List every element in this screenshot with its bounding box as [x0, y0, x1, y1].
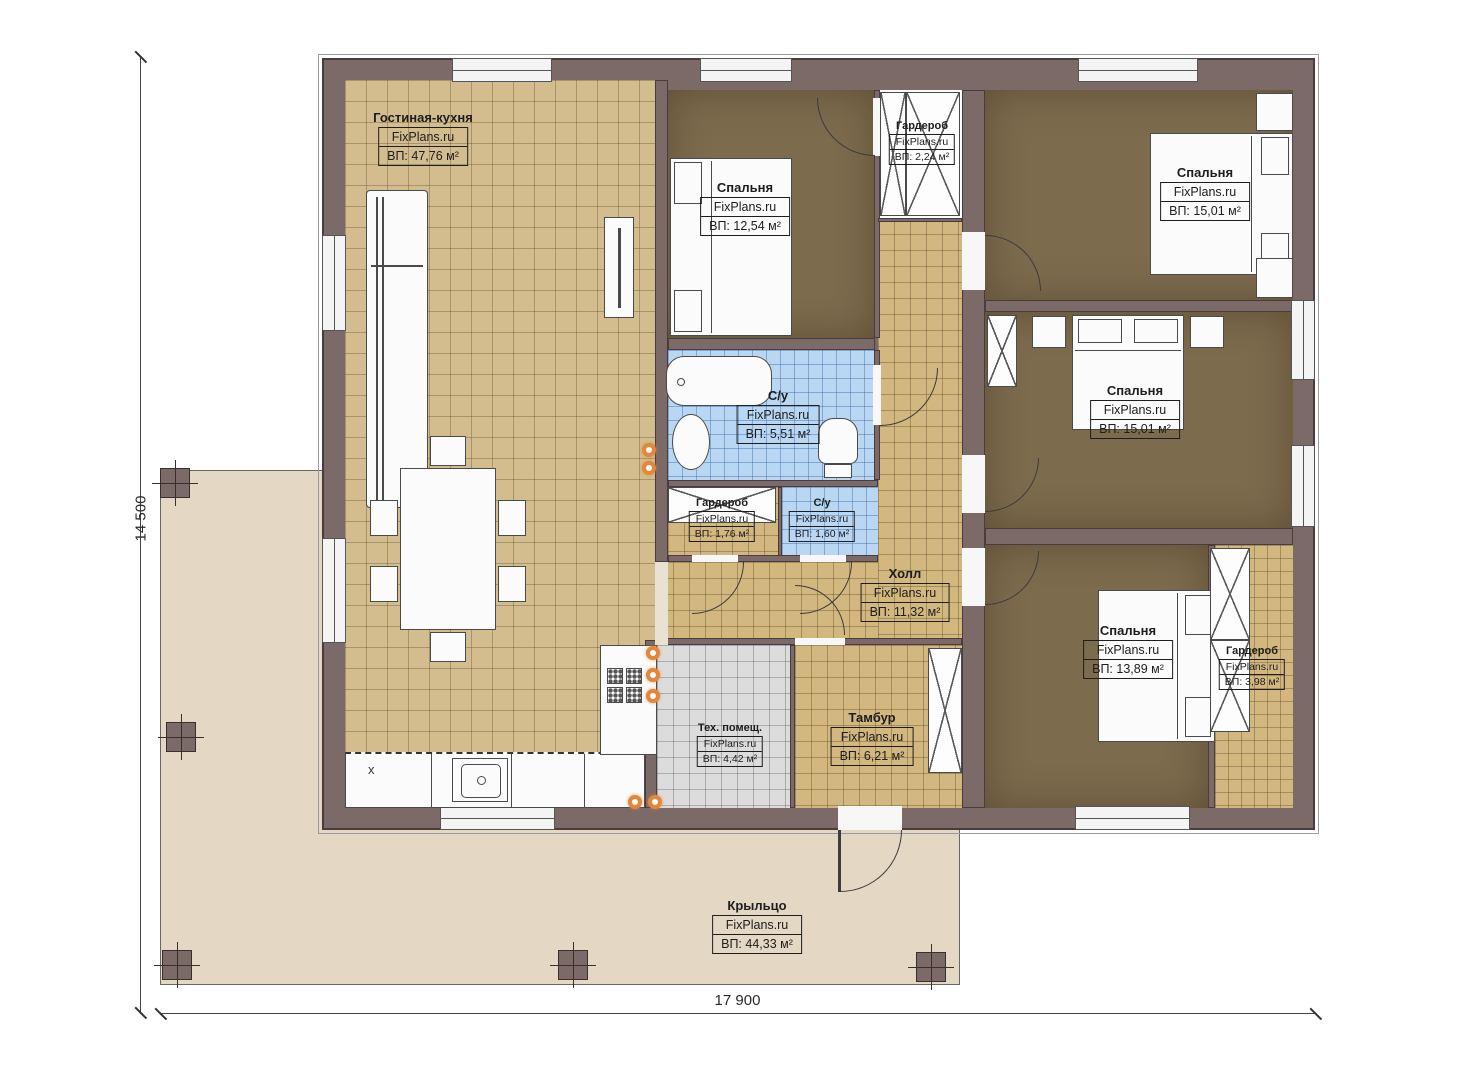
room-label-living: Гостиная-кухня FixPlans.ru ВП: 47,76 м² — [373, 110, 473, 166]
porch-post — [916, 952, 946, 982]
downlight-icon — [642, 443, 656, 457]
room-label-bath-main: С/у FixPlans.ru ВП: 5,51 м² — [737, 388, 820, 444]
room-name: Спальня — [700, 180, 790, 195]
door-opening — [962, 455, 985, 513]
room-area: ВП: 1,76 м² — [690, 526, 754, 541]
chair — [370, 500, 398, 536]
kitchen-sink — [452, 758, 508, 802]
downlight-icon — [628, 795, 642, 809]
nightstand — [1256, 258, 1293, 298]
brand-watermark: FixPlans.ru — [862, 584, 949, 602]
room-label-bedroom-right2: Спальня FixPlans.ru ВП: 15,01 м² — [1090, 383, 1180, 439]
wardrobe-cabinet — [1210, 548, 1250, 640]
brand-watermark: FixPlans.ru — [890, 135, 954, 149]
wall-segment — [778, 487, 782, 562]
room-area: ВП: 15,01 м² — [1091, 419, 1179, 438]
nightstand — [1032, 316, 1066, 348]
dimension-height-label: 14 500 — [133, 474, 150, 564]
wall-segment — [985, 300, 1293, 312]
entrance-door-opening — [838, 806, 902, 830]
bathroom-sink — [672, 414, 710, 470]
room-label-bedroom-bottom: Спальня FixPlans.ru ВП: 13,89 м² — [1083, 623, 1173, 679]
room-area: ВП: 13,89 м² — [1084, 659, 1172, 678]
door-opening — [800, 555, 846, 562]
downlight-icon — [646, 646, 660, 660]
window — [452, 58, 552, 82]
floor-plan: x Гос — [0, 0, 1473, 1080]
window — [322, 538, 346, 643]
brand-watermark: FixPlans.ru — [690, 512, 754, 526]
wall-segment — [668, 480, 878, 487]
room-label-bath-small: С/у FixPlans.ru ВП: 1,60 м² — [789, 497, 855, 542]
toilet — [816, 418, 860, 480]
room-name: Тех. помещ. — [697, 722, 763, 734]
porch-post — [160, 468, 190, 498]
chair — [498, 500, 526, 536]
sofa — [366, 190, 428, 508]
wall-segment — [878, 218, 962, 222]
downlight-icon — [646, 689, 660, 703]
room-name: Спальня — [1083, 623, 1173, 638]
room-area: ВП: 11,32 м² — [862, 602, 949, 621]
room-area: ВП: 15,01 м² — [1161, 201, 1249, 220]
tv-stand — [604, 217, 634, 318]
room-label-hall: Холл FixPlans.ru ВП: 11,32 м² — [861, 566, 950, 622]
nightstand — [1190, 316, 1224, 348]
wall-segment — [790, 645, 795, 808]
chair — [430, 436, 466, 466]
room-name: С/у — [789, 497, 855, 509]
porch-post — [166, 722, 196, 752]
room-name: Гардероб — [889, 120, 955, 132]
room-area: ВП: 5,51 м² — [738, 424, 819, 443]
room-label-bedroom-top: Спальня FixPlans.ru ВП: 12,54 м² — [700, 180, 790, 236]
closet-cabinet — [928, 648, 962, 773]
downlight-icon — [648, 795, 662, 809]
downlight-icon — [646, 668, 660, 682]
room-label-wardrobe-top: Гардероб FixPlans.ru ВП: 2,24 м² — [889, 120, 955, 165]
chair — [370, 566, 398, 602]
door-opening — [795, 638, 845, 645]
brand-watermark: FixPlans.ru — [1084, 641, 1172, 659]
downlight-icon — [642, 461, 656, 475]
room-label-tambur: Тамбур FixPlans.ru ВП: 6,21 м² — [831, 710, 914, 766]
room-name: Тамбур — [831, 710, 914, 725]
window — [322, 235, 346, 331]
room-area: ВП: 47,76 м² — [379, 146, 467, 165]
brand-watermark: FixPlans.ru — [701, 198, 789, 216]
brand-watermark: FixPlans.ru — [832, 728, 913, 746]
door-opening — [962, 548, 985, 606]
room-name: Гостиная-кухня — [373, 110, 473, 125]
room-name: С/у — [737, 388, 820, 403]
dining-table — [400, 468, 496, 630]
room-area: ВП: 6,21 м² — [832, 746, 913, 765]
room-area: ВП: 12,54 м² — [701, 216, 789, 235]
room-area: ВП: 2,24 м² — [890, 149, 954, 164]
window — [1291, 445, 1315, 527]
room-label-porch: Крыльцо FixPlans.ru ВП: 44,33 м² — [712, 898, 802, 954]
window — [1078, 58, 1198, 82]
brand-watermark: FixPlans.ru — [1091, 401, 1179, 419]
wall-segment — [655, 80, 668, 562]
room-name: Гардероб — [689, 497, 755, 509]
room-name: Гардероб — [1219, 645, 1285, 657]
room-area: ВП: 1,60 м² — [790, 526, 854, 541]
room-name: Холл — [861, 566, 950, 581]
brand-watermark: FixPlans.ru — [738, 406, 819, 424]
room-name: Крыльцо — [712, 898, 802, 913]
kitchen-x-marker: x — [368, 762, 375, 777]
porch-post — [162, 950, 192, 980]
brand-watermark: FixPlans.ru — [790, 512, 854, 526]
window — [1075, 806, 1190, 830]
room-label-wardrobe-mid: Гардероб FixPlans.ru ВП: 1,76 м² — [689, 497, 755, 542]
room-name: Спальня — [1160, 165, 1250, 180]
brand-watermark: FixPlans.ru — [1161, 183, 1249, 201]
wall-segment — [962, 90, 985, 808]
porch-post — [558, 950, 588, 980]
brand-watermark: FixPlans.ru — [1220, 660, 1284, 674]
window — [700, 58, 792, 82]
brand-watermark: FixPlans.ru — [379, 128, 467, 146]
door-opening — [692, 555, 738, 562]
room-label-tech: Тех. помещ. FixPlans.ru ВП: 4,42 м² — [697, 722, 763, 767]
room-opening — [655, 562, 668, 645]
entrance-door-leaf — [838, 830, 841, 892]
brand-watermark: FixPlans.ru — [698, 737, 762, 751]
room-area: ВП: 44,33 м² — [713, 934, 801, 953]
brand-watermark: FixPlans.ru — [713, 916, 801, 934]
window — [440, 806, 555, 830]
dimension-line-horizontal — [160, 1013, 1315, 1014]
room-area: ВП: 3,98 м² — [1220, 674, 1284, 689]
chair — [430, 632, 466, 662]
wall-segment — [668, 338, 875, 350]
room-label-wardrobe-bottom: Гардероб FixPlans.ru ВП: 3,98 м² — [1219, 645, 1285, 690]
door-opening — [962, 232, 985, 290]
wardrobe-cabinet — [987, 315, 1017, 387]
room-area: ВП: 4,42 м² — [698, 751, 762, 766]
room-name: Спальня — [1090, 383, 1180, 398]
nightstand — [1256, 93, 1293, 131]
room-label-bedroom-right1: Спальня FixPlans.ru ВП: 15,01 м² — [1160, 165, 1250, 221]
dimension-width-label: 17 900 — [160, 992, 1315, 1009]
chair — [498, 566, 526, 602]
window — [1291, 300, 1315, 380]
wall-segment — [985, 528, 1293, 545]
stove-burners — [607, 668, 643, 704]
